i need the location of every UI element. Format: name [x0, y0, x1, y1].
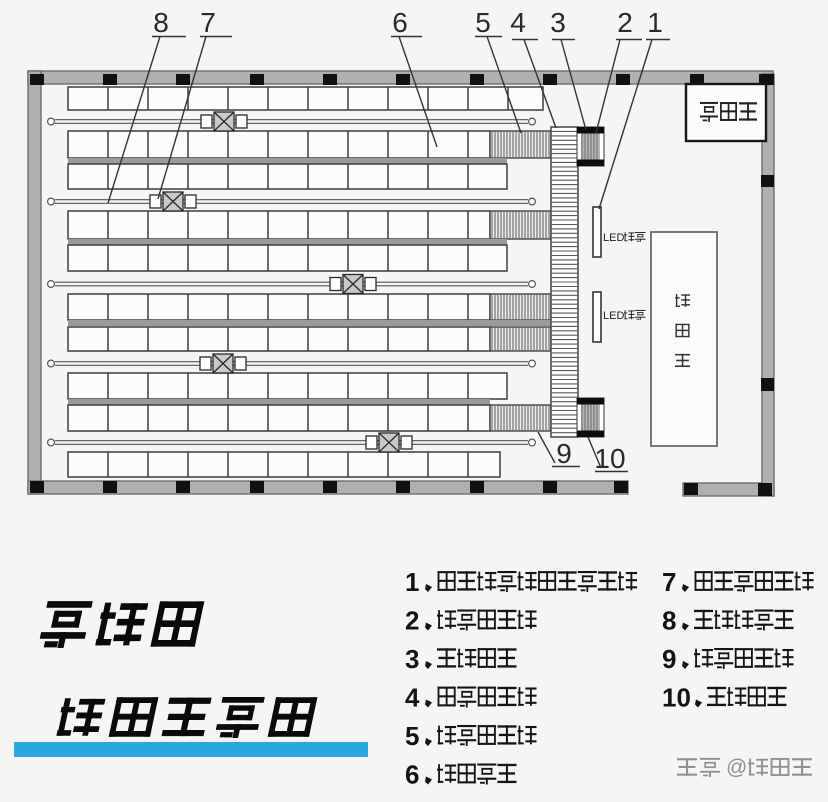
- svg-text:LED: LED: [603, 310, 624, 322]
- svg-text:5: 5: [405, 721, 419, 751]
- svg-text:1: 1: [647, 7, 663, 38]
- svg-text:3: 3: [405, 644, 419, 674]
- svg-text:7: 7: [200, 7, 216, 38]
- svg-text:5: 5: [475, 7, 491, 38]
- svg-text:8: 8: [662, 606, 676, 636]
- svg-text:7: 7: [662, 567, 676, 597]
- svg-text:3: 3: [550, 7, 566, 38]
- svg-text:2: 2: [405, 606, 419, 636]
- svg-text:4: 4: [405, 683, 420, 713]
- svg-text:LED: LED: [603, 232, 624, 244]
- svg-text:6: 6: [405, 760, 419, 790]
- svg-text:1: 1: [405, 567, 419, 597]
- svg-text:4: 4: [510, 7, 526, 38]
- svg-text:9: 9: [556, 438, 572, 469]
- svg-text:2: 2: [617, 7, 633, 38]
- svg-text:8: 8: [153, 7, 169, 38]
- svg-text:10: 10: [594, 443, 625, 474]
- svg-text:10: 10: [662, 683, 691, 713]
- svg-text:6: 6: [392, 7, 408, 38]
- svg-text:@: @: [726, 756, 747, 779]
- svg-text:9: 9: [662, 644, 676, 674]
